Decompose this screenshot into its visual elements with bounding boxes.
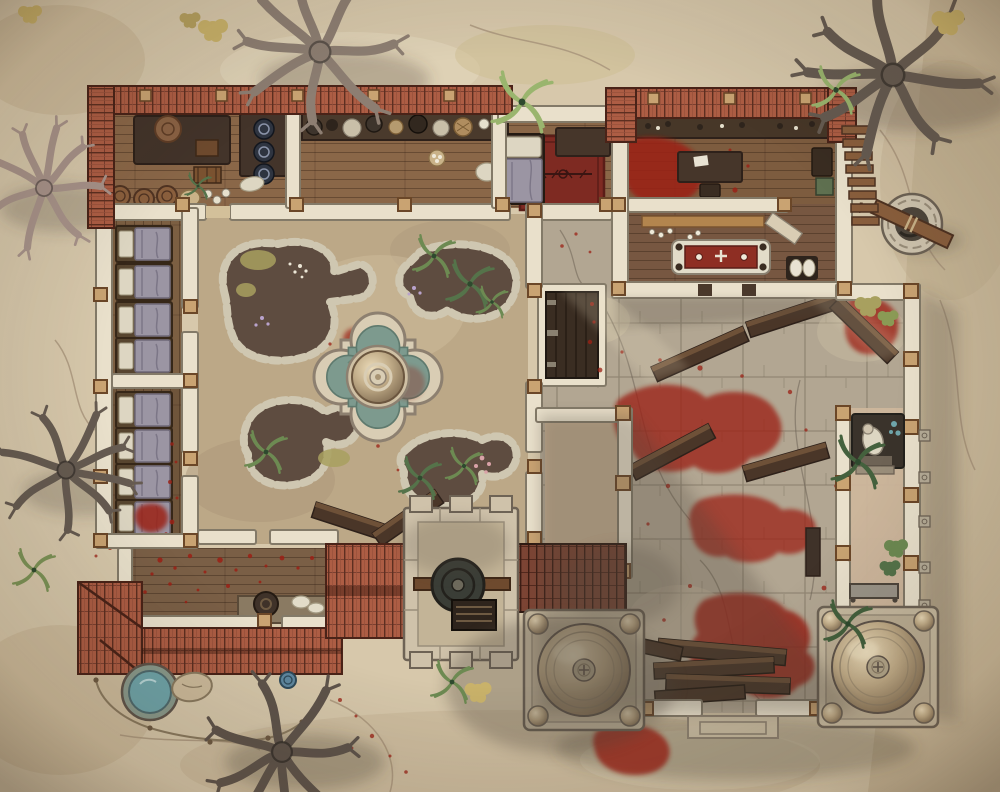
vignette <box>0 0 1000 792</box>
map-canvas <box>0 0 1000 792</box>
battle-map <box>0 0 1000 792</box>
